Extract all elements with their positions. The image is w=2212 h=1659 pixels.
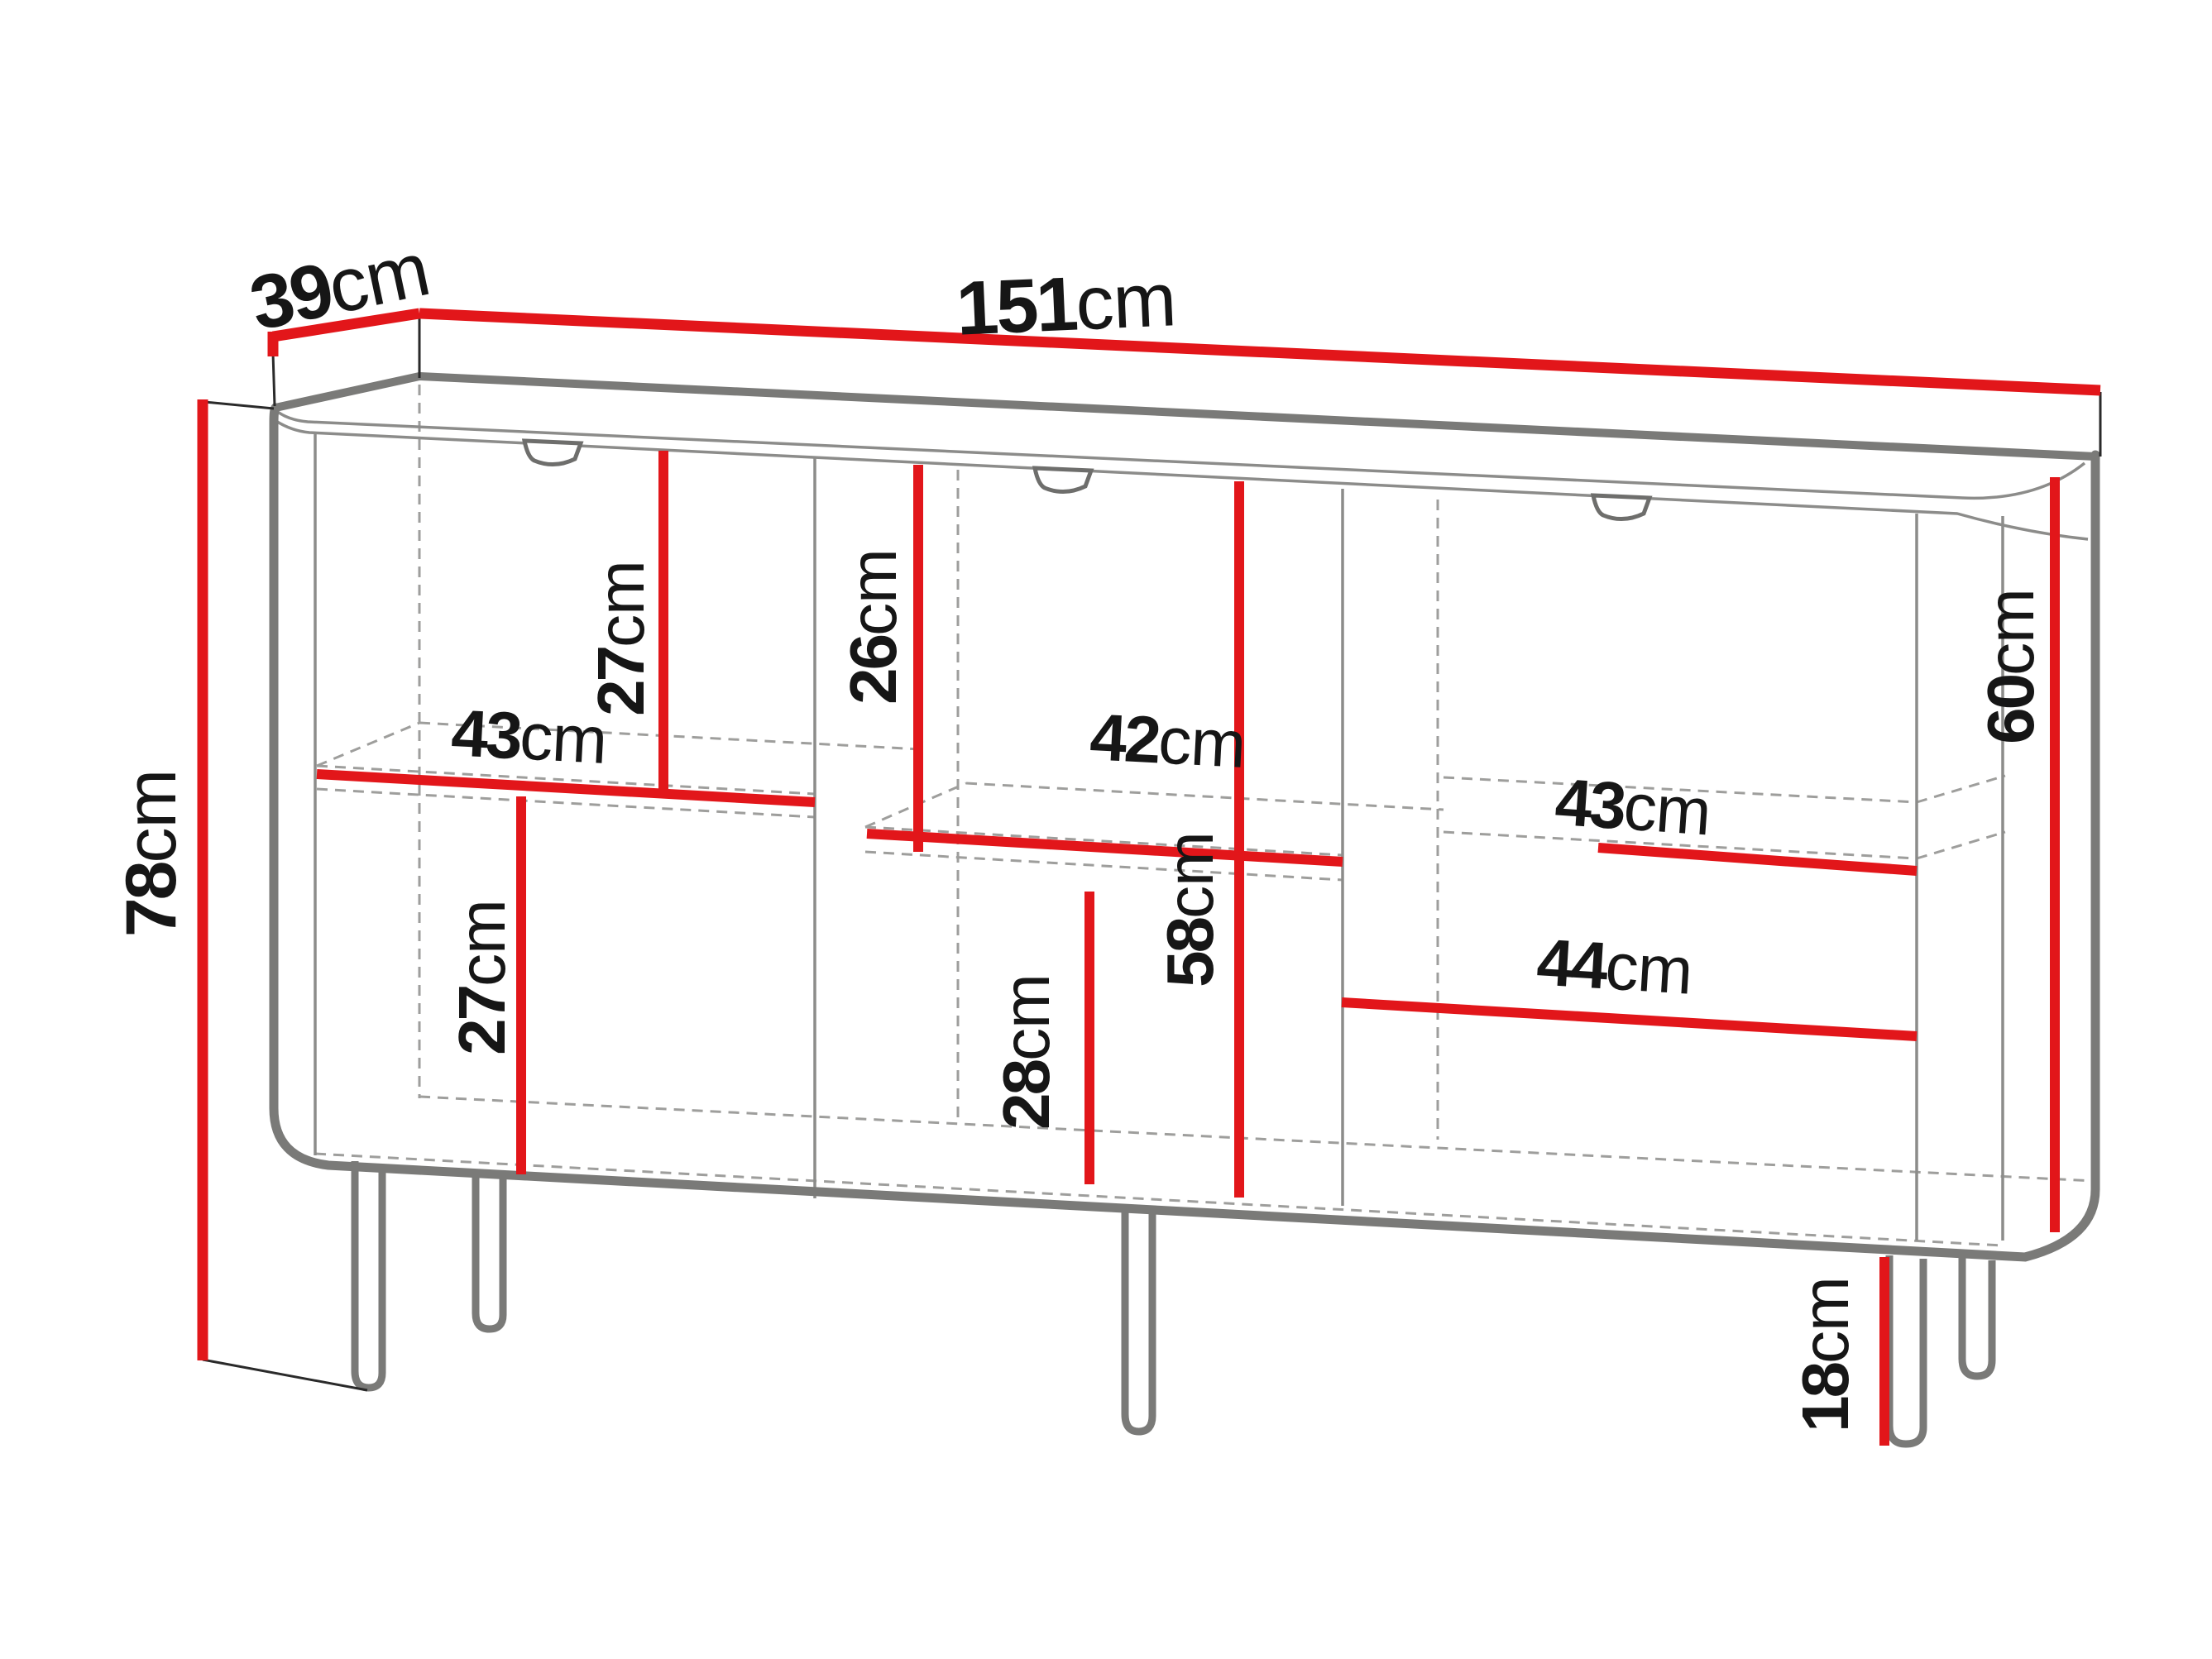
tick-78-bottom	[203, 1360, 367, 1390]
label-depth-39: 39cm	[243, 227, 436, 347]
handle-middle-door-icon	[1035, 468, 1091, 492]
top-left-depth-edge	[275, 376, 419, 408]
label-right-shelf-43: 43cm	[1553, 765, 1712, 849]
label-left-shelf-43: 43cm	[449, 696, 608, 777]
tick-39-left	[273, 353, 275, 406]
middle-shelf-back-hidden	[966, 783, 1444, 810]
right-shelf-front-bend	[1917, 832, 2005, 858]
floor-back-hidden	[419, 1097, 2094, 1181]
label-middle-shelf-42: 42cm	[1088, 700, 1247, 782]
label-upper-middle-26: 26cm	[836, 549, 910, 705]
dim-43-left-shelf-line	[317, 774, 815, 802]
handle-right-door-icon	[1593, 495, 1649, 519]
handle-left-door-icon	[524, 441, 581, 465]
label-lower-left-27: 27cm	[445, 900, 519, 1055]
right-shelf-back-bend	[1917, 776, 2005, 802]
tick-78-top	[204, 402, 274, 409]
hidden-edges	[315, 385, 2094, 1245]
label-drawer-44: 44cm	[1535, 925, 1694, 1007]
dim-42-middle-shelf-line	[867, 834, 1343, 862]
leg-back-left	[476, 1169, 503, 1329]
label-right-60: 60cm	[1974, 589, 2047, 744]
legs	[355, 1161, 1992, 1444]
topboard-bottom-edge	[275, 420, 2088, 539]
leg-back-right	[1962, 1257, 1992, 1376]
dim-43-right-shelf-line	[1598, 848, 1917, 871]
label-lower-middle-28: 28cm	[989, 974, 1063, 1130]
dim-44-drawer-line	[1342, 1002, 1917, 1036]
label-leg-18: 18cm	[1788, 1277, 1862, 1432]
diagram-canvas: 39cm 151cm 78cm 27cm 26cm 43cm 42cm 43cm…	[0, 0, 2212, 1659]
leg-front-left	[355, 1161, 382, 1388]
top-back-edge	[419, 376, 2095, 457]
leg-front-right	[1889, 1255, 1923, 1444]
dim-width-151-line	[419, 313, 2100, 390]
leg-middle	[1125, 1206, 1152, 1432]
label-height-78: 78cm	[112, 770, 191, 937]
left-shelf-depth-hidden	[317, 723, 419, 766]
label-interior-58: 58cm	[1153, 832, 1227, 987]
furniture-dimension-diagram: 39cm 151cm 78cm 27cm 26cm 43cm 42cm 43cm…	[0, 0, 2212, 1659]
interior-edges	[275, 410, 2088, 1241]
label-width-151: 151cm	[955, 257, 1177, 351]
cabinet-outline	[274, 376, 2095, 1257]
floor-front-hidden	[315, 1154, 2002, 1245]
label-upper-left-27: 27cm	[584, 561, 658, 716]
